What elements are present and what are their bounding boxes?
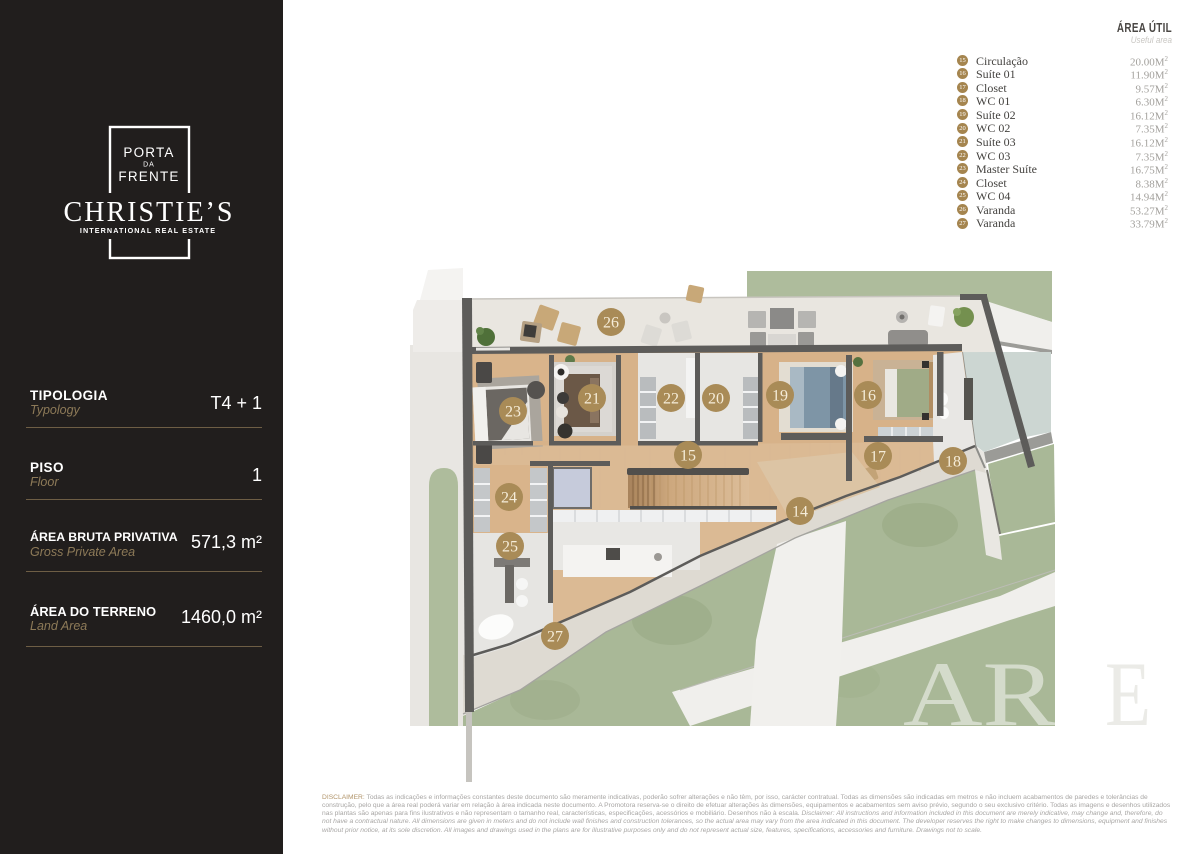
- svg-text:E: E: [1105, 643, 1151, 745]
- svg-text:19: 19: [772, 388, 788, 405]
- svg-text:AR: AR: [903, 643, 1057, 745]
- svg-text:27: 27: [547, 629, 563, 646]
- svg-text:14: 14: [792, 504, 808, 521]
- svg-text:17: 17: [870, 449, 886, 466]
- svg-text:FRENTE: FRENTE: [118, 169, 179, 184]
- svg-text:23: 23: [505, 404, 521, 421]
- svg-text:26: 26: [603, 315, 619, 332]
- svg-text:15: 15: [680, 448, 696, 465]
- svg-text:INTERNATIONAL REAL ESTATE: INTERNATIONAL REAL ESTATE: [80, 226, 216, 235]
- svg-text:CHRISTIE’S: CHRISTIE’S: [64, 197, 235, 228]
- svg-text:22: 22: [663, 391, 679, 408]
- svg-text:DA: DA: [143, 162, 155, 169]
- svg-text:18: 18: [945, 454, 961, 471]
- svg-text:25: 25: [502, 539, 518, 556]
- svg-text:20: 20: [708, 391, 724, 408]
- svg-text:21: 21: [584, 391, 600, 408]
- svg-text:16: 16: [860, 388, 876, 405]
- svg-text:PORTA: PORTA: [123, 145, 174, 160]
- svg-text:24: 24: [501, 490, 517, 507]
